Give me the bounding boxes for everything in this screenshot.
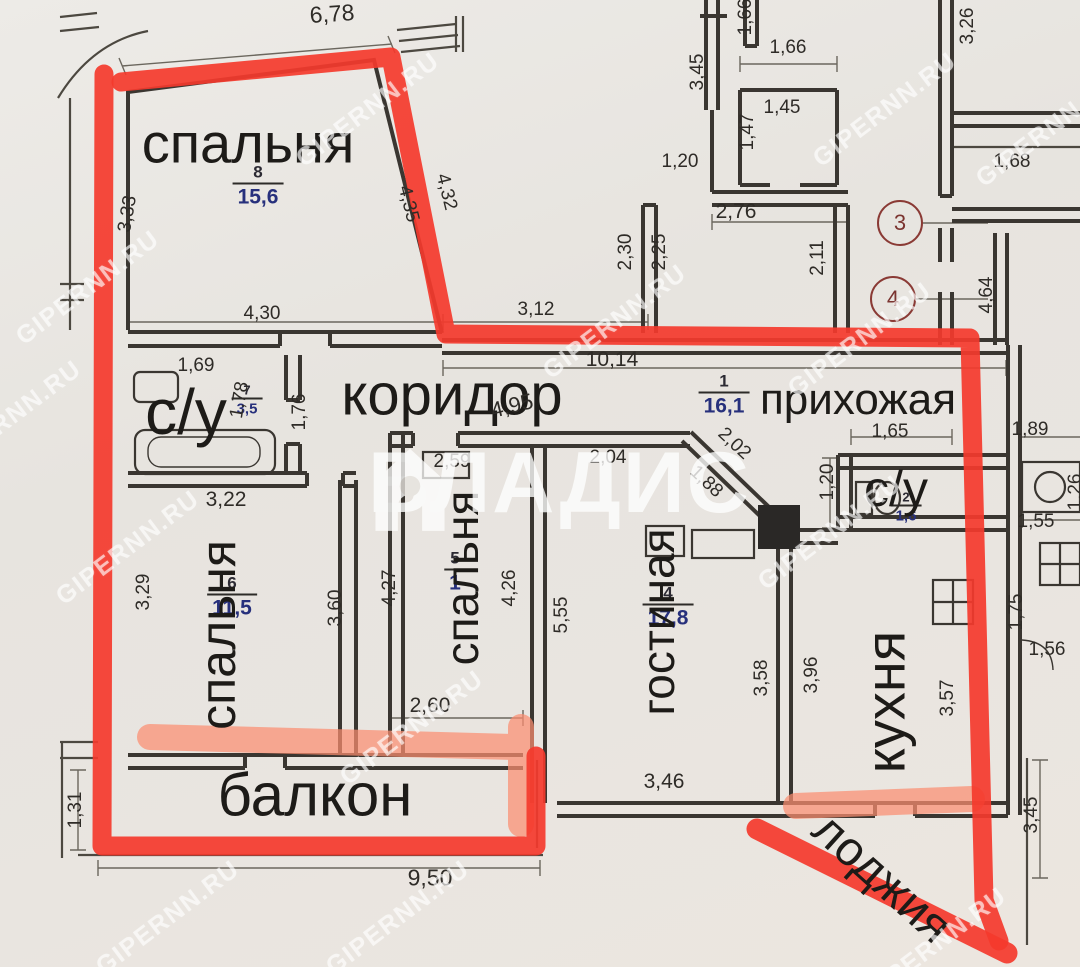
dim-label: 3,96	[801, 657, 823, 694]
dim-label: 3,58	[751, 660, 773, 697]
salmon-highlight	[796, 799, 972, 806]
dim-label: 1,76	[289, 394, 311, 431]
cabinet-icon	[692, 530, 754, 558]
room-label-bath7: с/у	[145, 375, 227, 449]
dim-label: 3,12	[518, 299, 555, 321]
room-label-balcony: балкон	[218, 761, 413, 830]
dim-label: 3,60	[325, 590, 347, 627]
brand-logo-house-icon	[368, 440, 452, 536]
dim-label: 4,64	[976, 277, 998, 314]
dim-label: 4,26	[499, 570, 521, 607]
dim-label: 1,65	[872, 421, 909, 443]
section-marker-3: 3	[877, 200, 923, 246]
dim-label: 2,76	[716, 200, 757, 224]
dim-label: 1,55	[1018, 511, 1055, 533]
dim-label: 1,75	[1006, 594, 1028, 631]
dim-label: 6,78	[309, 0, 356, 29]
room-area: 15,6	[233, 183, 284, 210]
dim-label: 1,66	[770, 37, 807, 59]
dim-label: 3,26	[957, 8, 979, 45]
dim-label: 5,55	[551, 597, 573, 634]
dim-label: 1,31	[65, 792, 87, 829]
dim-label: 1,89	[1012, 419, 1049, 441]
dim-label: 1,45	[764, 97, 801, 119]
dim-label: 3,46	[644, 770, 685, 794]
dim-label: 3,22	[206, 488, 247, 512]
floor-plan-canvas: 8 15,6 7 3,5 1 16,1 6 11,5 5 1 4 17,8 2 …	[0, 0, 1080, 967]
dim-label: 2,30	[615, 234, 637, 271]
room-label-bedroom6: спальня	[189, 540, 247, 730]
room-label-kitchen: кухня	[853, 631, 918, 773]
watermark-brand: ВЛАДИС	[368, 440, 751, 526]
room-number: 1	[711, 372, 736, 392]
dim-label: 1,20	[662, 151, 699, 173]
dim-label: 1,66	[735, 0, 757, 35]
dim-label: 3,57	[937, 680, 959, 717]
room-area: 16,1	[699, 392, 750, 419]
dim-label: 1,47	[737, 114, 759, 151]
dim-label: 1,20	[817, 464, 839, 501]
room-area-hallway1: 1 16,1	[699, 372, 750, 419]
dim-label: 4,30	[244, 303, 281, 325]
room-label-living: гостиная	[631, 528, 685, 715]
dim-label: 2,11	[807, 240, 829, 276]
dim-label: 3,45	[687, 54, 709, 91]
dim-label: 1,26	[1065, 474, 1080, 511]
dim-label: 1,56	[1029, 639, 1066, 661]
dim-label: 4,27	[379, 570, 401, 607]
dim-label: 3,29	[133, 574, 155, 611]
dim-label: 3,45	[1021, 797, 1043, 834]
dim-label: 1,69	[178, 355, 215, 377]
